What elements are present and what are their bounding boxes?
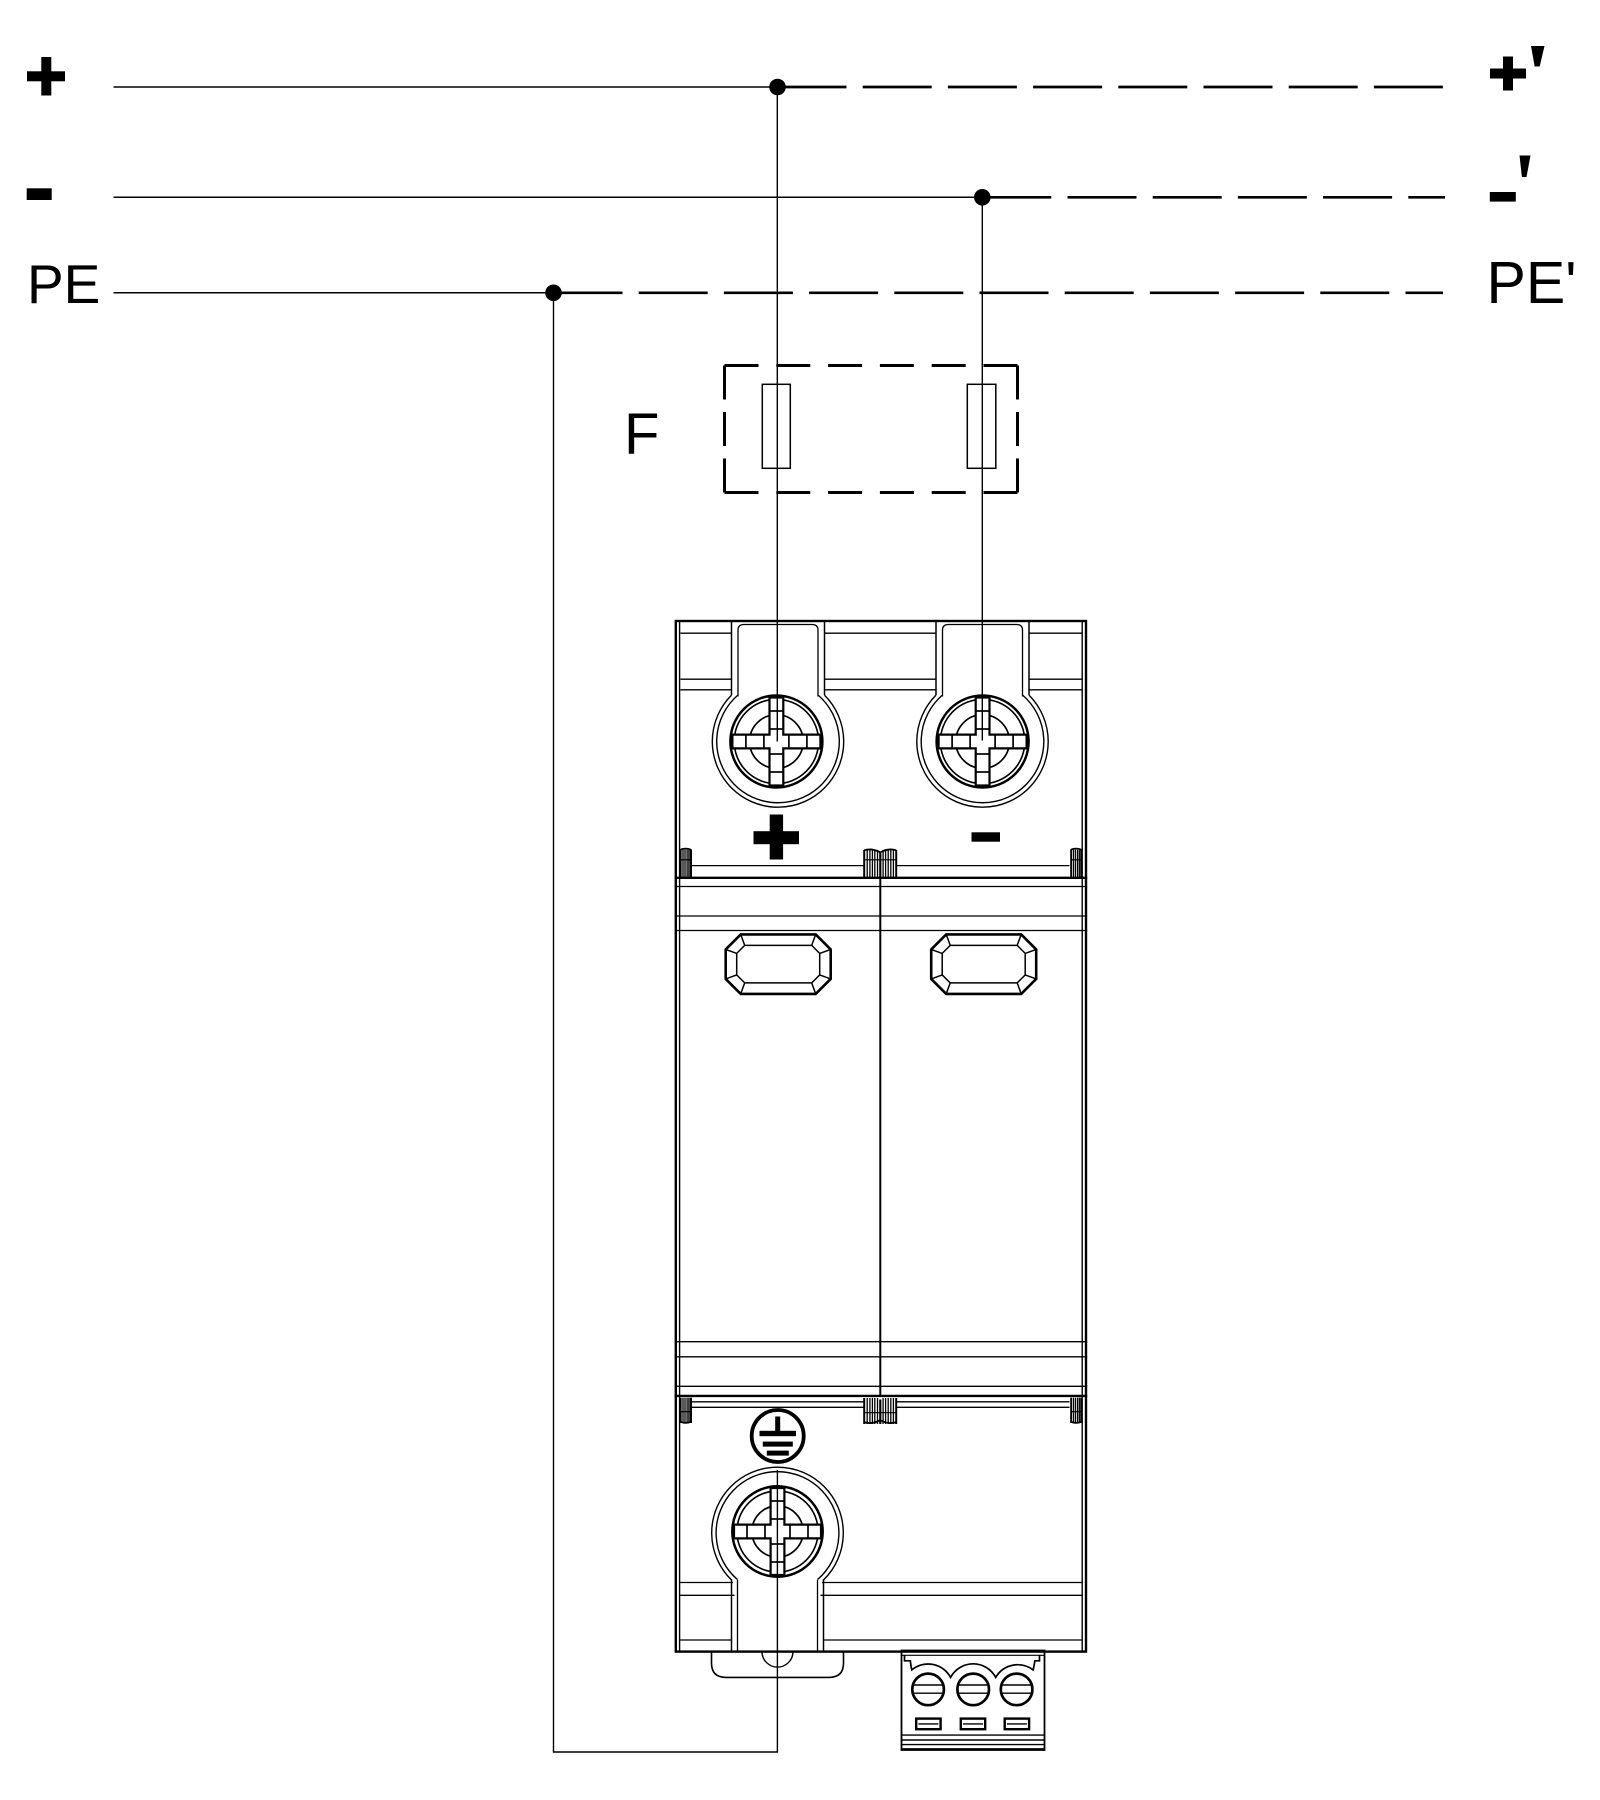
svg-text:PE: PE <box>27 253 100 315</box>
svg-text:PE': PE' <box>1487 250 1577 316</box>
svg-text:F: F <box>624 402 659 467</box>
